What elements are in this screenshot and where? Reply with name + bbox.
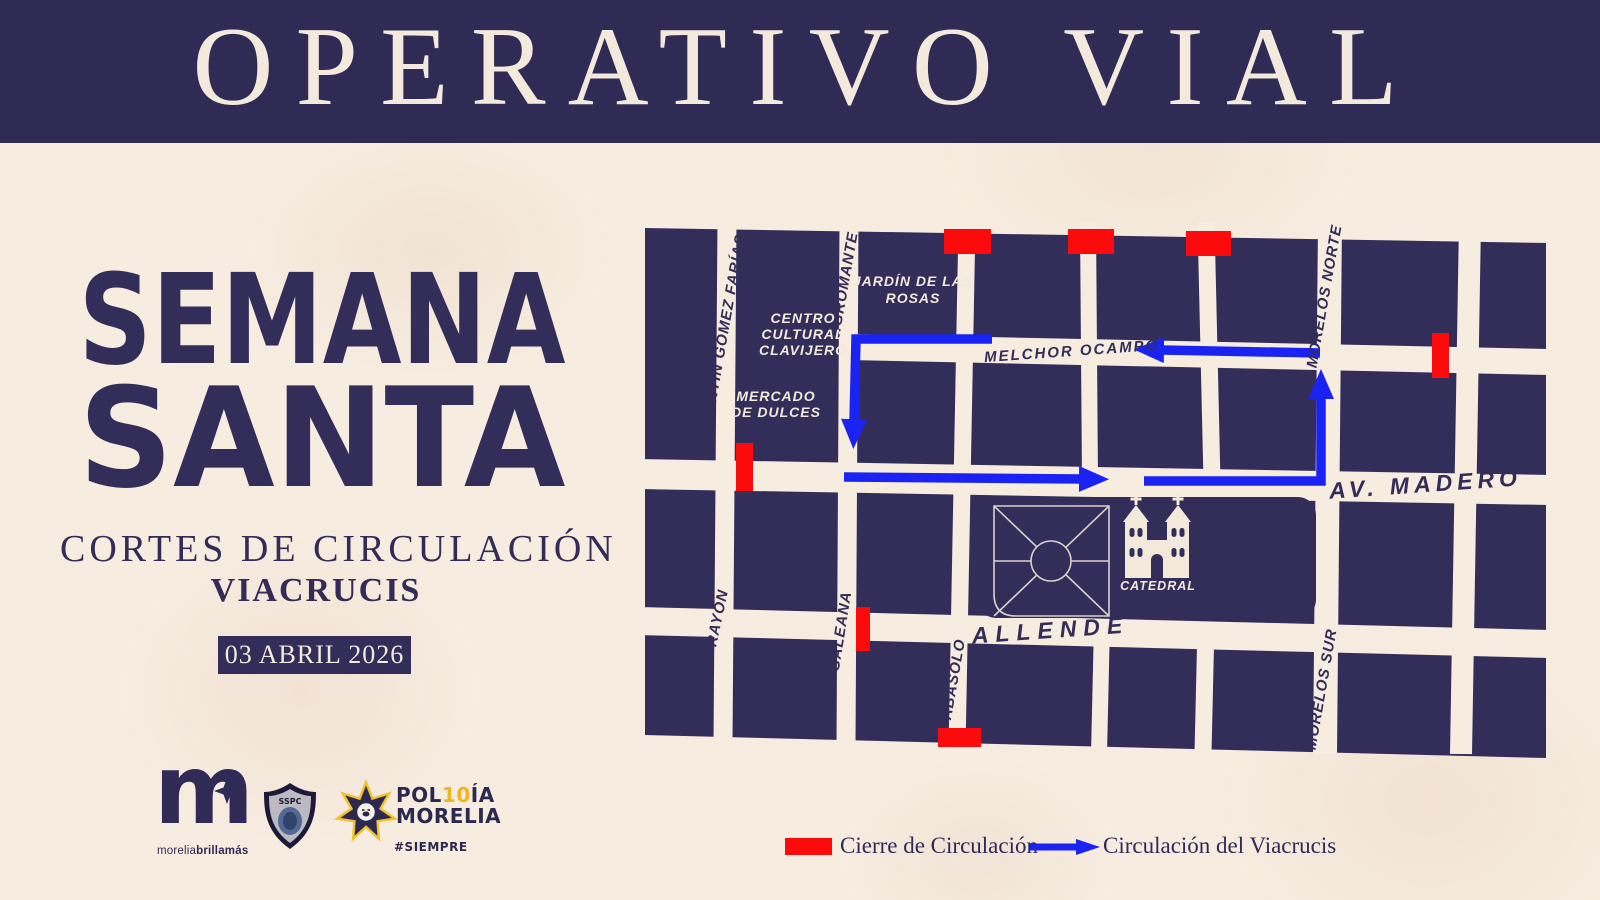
landmark-centro-line2: CULTURAL (761, 326, 844, 342)
title-santa: SANTA (79, 358, 566, 505)
landmark-jardin-line1: JARDÍN DE LAS (853, 273, 973, 289)
legend-closure-swatch (785, 838, 832, 855)
policia-hashtag: #SIEMPRE (394, 840, 468, 854)
legend-route-arrow-icon (1028, 839, 1103, 855)
policia-line1: POL10ÍA (396, 785, 501, 806)
policia-line2: MORELIA (396, 806, 501, 827)
tagline-brilla: brilla (196, 845, 225, 857)
closure-marker-top-1 (944, 229, 991, 254)
closure-marker-galeana (856, 607, 870, 651)
page-title: OPERATIVO VIAL (193, 5, 1398, 129)
header-title-canvas: OPERATIVO VIAL (0, 0, 1600, 143)
legend-route-label: Circulación del Viacrucis (1103, 833, 1336, 859)
event-name: VIACRUCIS (60, 572, 572, 610)
subtitle-cortes: CORTES DE CIRCULACIÓN (60, 527, 572, 571)
closure-marker-madero-west (736, 443, 753, 491)
route-arrow-ocampo-west (1161, 350, 1320, 353)
landmark-mercado-line1: MERCADO (736, 388, 815, 404)
main-title-canvas: SEMANA SANTA (60, 255, 590, 505)
policia-morelia-wordmark: POL10ÍA MORELIA (396, 785, 501, 827)
sparkle-icon (214, 778, 240, 804)
closure-marker-abasolo (938, 728, 981, 747)
tagline-morelia: morelia (157, 845, 196, 857)
landmark-centro-line3: CLAVIJERO (759, 342, 847, 358)
morelia-tagline: moreliabrillamás (157, 845, 248, 857)
landmark-catedral: CATEDRAL (1120, 579, 1196, 593)
event-date: 03 ABRIL 2026 (225, 640, 405, 670)
closure-marker-ocampo-east (1432, 333, 1449, 378)
closure-marker-top-2 (1068, 229, 1114, 254)
legend-closure-label: Cierre de Circulación (840, 833, 1038, 859)
morelia-logo: m moreliabrillamás (150, 742, 270, 862)
closure-marker-top-3 (1186, 231, 1231, 256)
header-banner: OPERATIVO VIAL (0, 0, 1600, 143)
policia-star-badge-icon (331, 777, 401, 847)
landmark-mercado-line2: DE DULCES (731, 404, 821, 420)
landmark-centro-line1: CENTRO (770, 310, 835, 326)
route-arrow-madero-east (844, 477, 1082, 479)
street-map: VALENTÍN GÓMEZ FARÍAS NIGROMANTE MORELOS… (620, 200, 1550, 770)
tagline-mas: más (225, 845, 249, 857)
sspc-shield-icon: SSPC (261, 781, 319, 851)
poster-root: { "poster": { "header_title": "OPERATIVO… (0, 0, 1600, 900)
date-badge: 03 ABRIL 2026 (218, 636, 411, 674)
landmark-jardin-line2: ROSAS (886, 290, 941, 306)
sspc-label: SSPC (279, 797, 302, 806)
